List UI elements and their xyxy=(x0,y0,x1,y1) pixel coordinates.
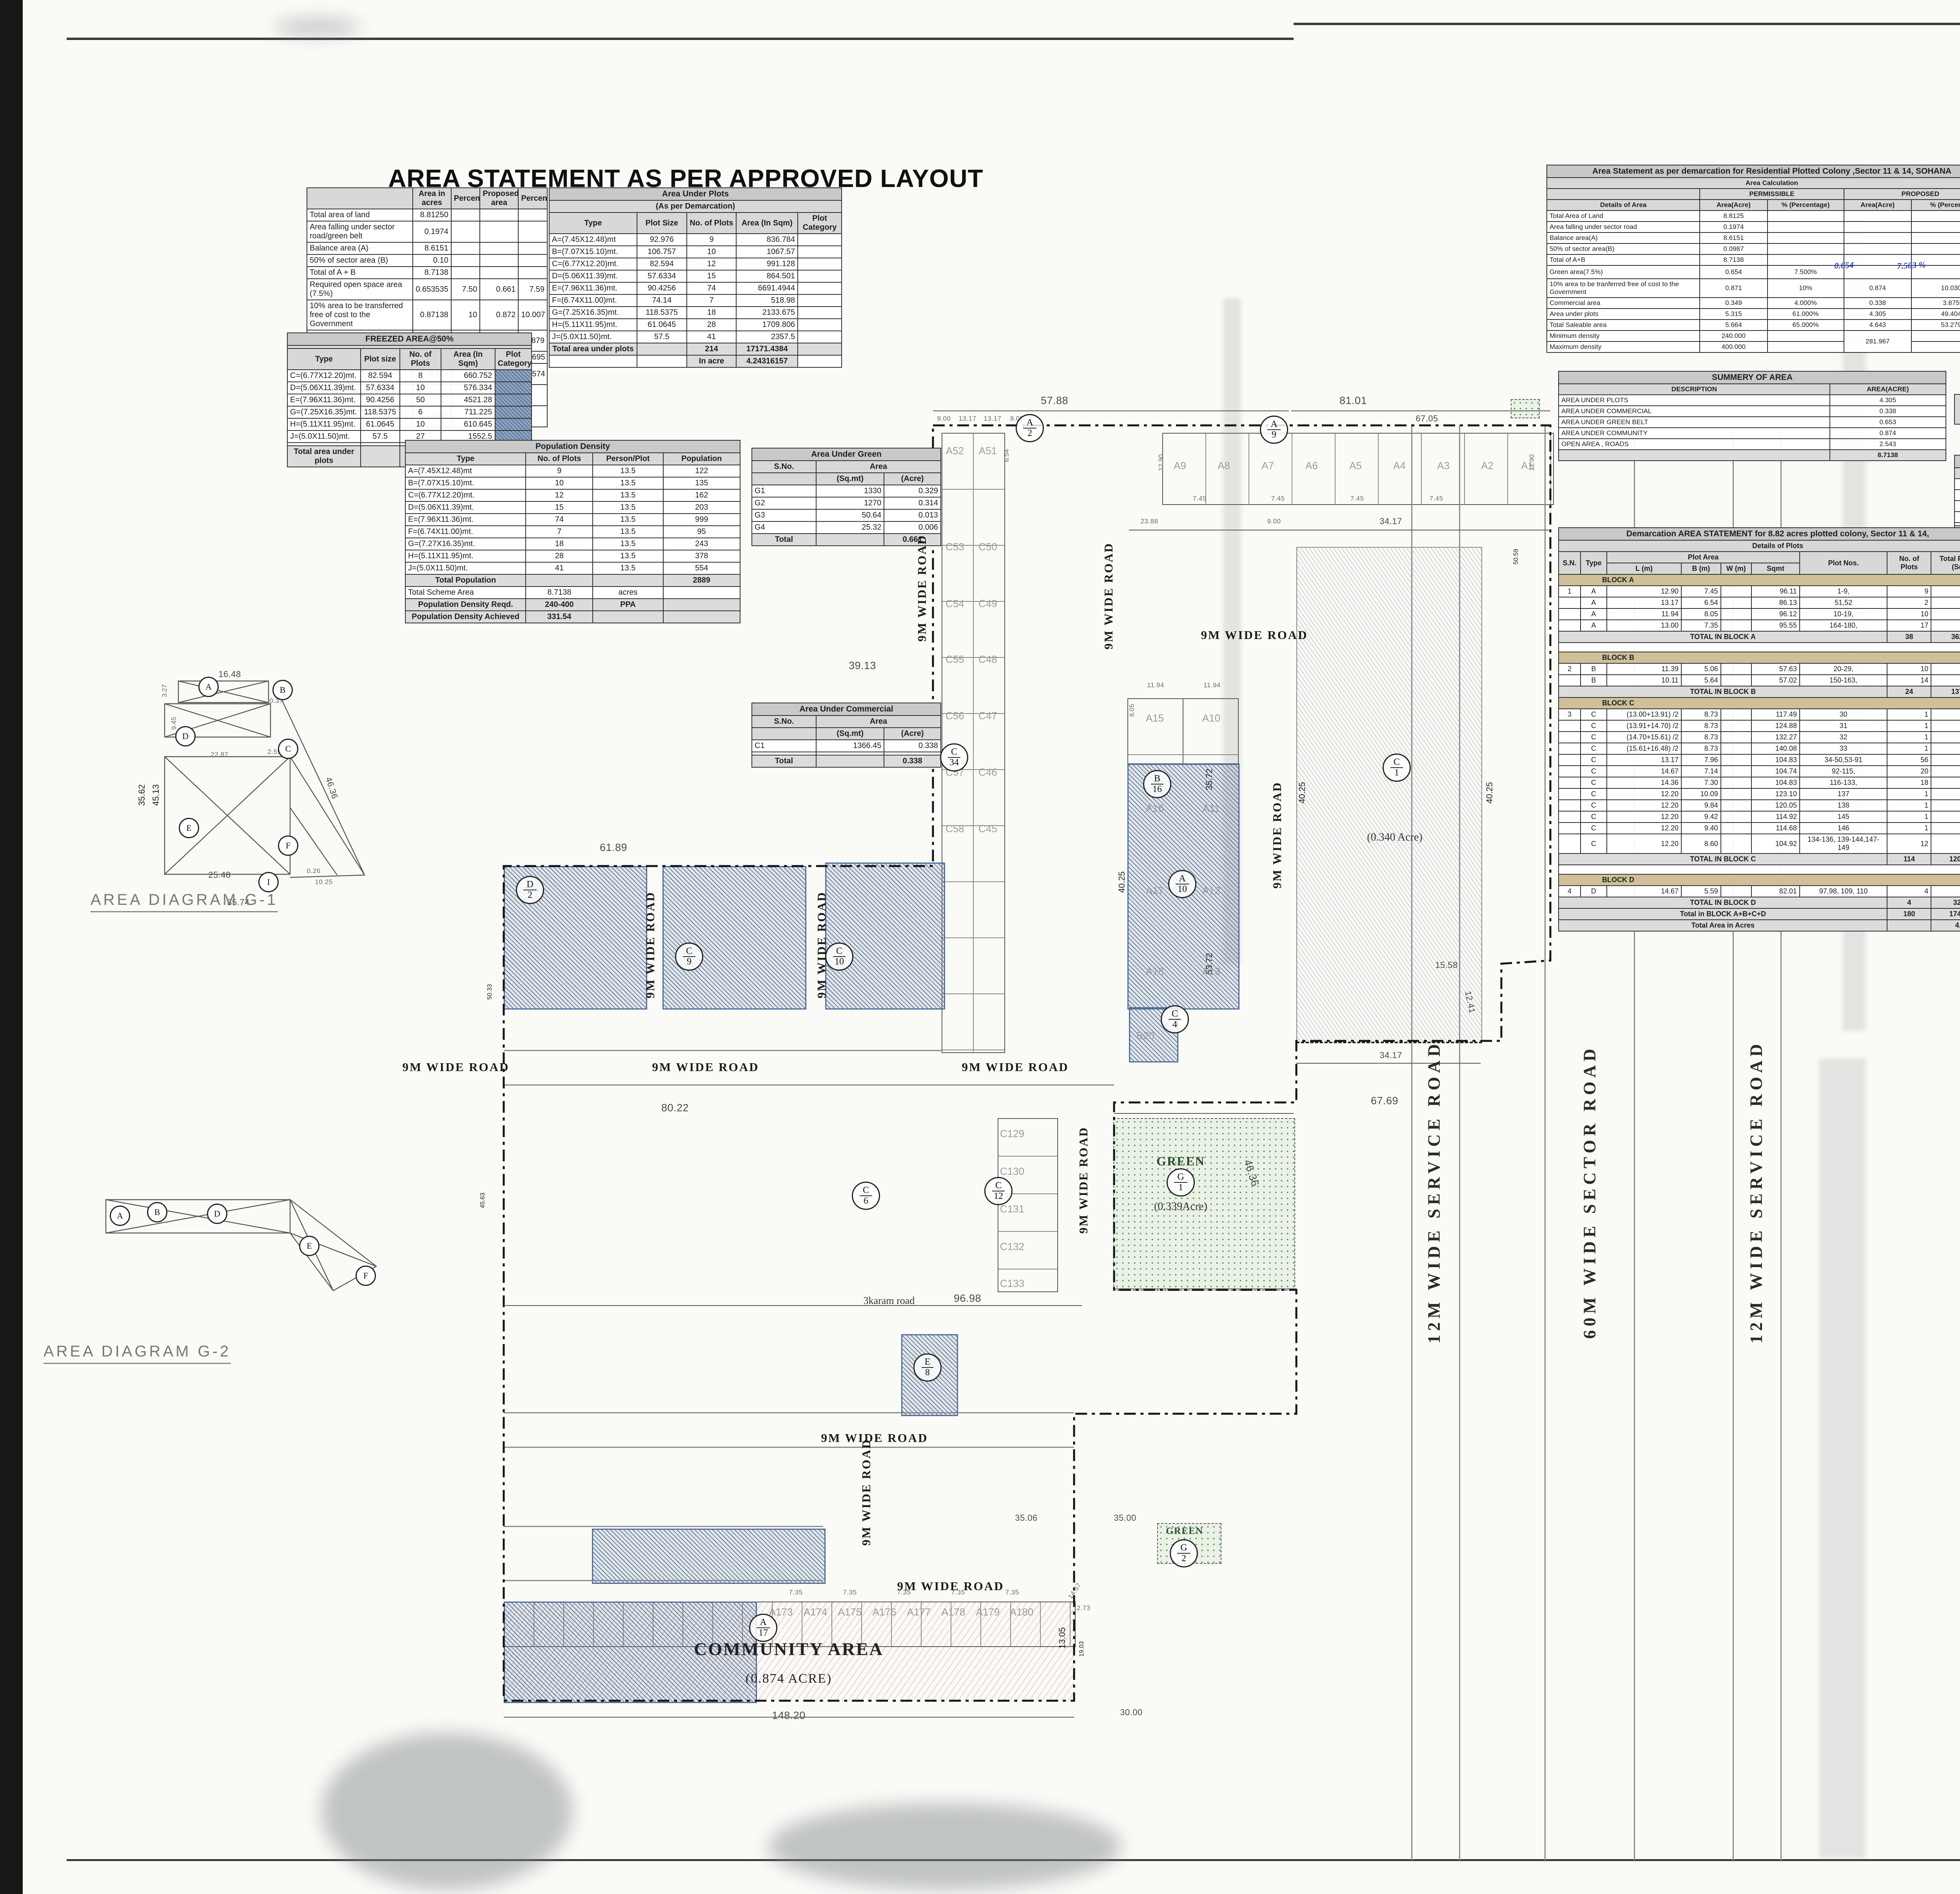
cell xyxy=(1559,811,1581,823)
cell xyxy=(451,242,480,254)
circle-letter: A xyxy=(114,1211,126,1220)
cell: A xyxy=(1581,608,1607,620)
cell: 172.26 xyxy=(1931,597,1960,608)
block-circle-label: D xyxy=(175,726,196,746)
table-summary-of-area: SUMMERY OF AREADESCRIPTIONAREA(ACRE)AREA… xyxy=(1558,371,1946,461)
cell xyxy=(361,443,400,446)
cell: E=(7.96X11.36)mt. xyxy=(287,394,361,406)
cell: 12098.95 xyxy=(1931,853,1960,865)
road-label: 9M WIDE ROAD xyxy=(962,1060,1069,1074)
gname-label: GREEN xyxy=(1156,1154,1205,1169)
cell xyxy=(637,343,687,355)
cell: Type xyxy=(1581,552,1607,574)
cell: Minimum density xyxy=(1547,330,1700,341)
plot-label: A1 xyxy=(1521,460,1534,472)
cell: 4 xyxy=(1887,897,1931,908)
cell: H=(5.11X11.95)mt. xyxy=(549,319,637,331)
circle-number: 6 xyxy=(862,1196,870,1206)
cell: Total xyxy=(752,755,816,767)
cell: AREA UNDER COMMUNITY xyxy=(1559,428,1830,439)
cell xyxy=(1559,450,1830,461)
cell: Plot Area xyxy=(1607,552,1800,563)
block-circle-label: G2 xyxy=(1170,1539,1198,1567)
cell: C xyxy=(1581,788,1607,800)
cell xyxy=(1768,211,1844,222)
cell: 0.338 xyxy=(1830,406,1946,417)
cell: A xyxy=(1955,479,1960,490)
plot-label: C46 xyxy=(978,766,997,779)
cell: No. of Plots xyxy=(1887,552,1931,574)
cell: 0.329 xyxy=(884,485,941,497)
cell xyxy=(593,611,663,623)
dimv-label: 3.27 xyxy=(161,684,169,697)
cell xyxy=(1887,920,1931,931)
cell: TOTAL IN BLOCK D xyxy=(1559,897,1887,908)
cell: 0.0987 xyxy=(1700,243,1767,254)
cell: 117.49 xyxy=(1751,709,1800,720)
dimv-label: 8.05 xyxy=(1128,704,1136,717)
cell: C xyxy=(1581,777,1607,788)
cell: G=(7.25X16.35)mt. xyxy=(549,307,637,319)
cell: 10 xyxy=(526,477,593,489)
plot-label: C58 xyxy=(946,823,964,835)
block-circle-label: A17 xyxy=(749,1614,777,1642)
cell: 0.1974 xyxy=(1700,222,1767,232)
cell xyxy=(816,752,884,755)
cell: 13.5 xyxy=(593,489,663,501)
dim-label: 7.45 xyxy=(1192,495,1206,503)
cell xyxy=(1559,788,1581,800)
cell xyxy=(1559,800,1581,811)
cell xyxy=(1721,743,1751,754)
cell: 6 xyxy=(400,406,441,418)
smudge-area xyxy=(768,1803,1121,1890)
cell: 10 xyxy=(1887,608,1931,620)
cell: 10.030% xyxy=(1911,279,1960,298)
cell: 10-19, xyxy=(1800,608,1887,620)
cell: 2133.675 xyxy=(736,307,798,319)
cell xyxy=(752,473,816,485)
plot-label: A176 xyxy=(873,1606,897,1618)
dim-label: 96.98 xyxy=(954,1293,981,1305)
cell: Type xyxy=(549,212,637,234)
plot-label: C53 xyxy=(946,541,964,553)
cell: 11.94 xyxy=(1607,608,1681,620)
cell xyxy=(752,728,816,740)
table-50pct-freezed-box: 50% area to be freezed by DepartmentPERM… xyxy=(1954,394,1960,425)
cell: 8.73 xyxy=(1681,720,1721,732)
cell: 12.90 xyxy=(1607,586,1681,597)
roadbig-label: 60M WIDE SECTOR ROAD xyxy=(1580,1045,1600,1339)
cell: Plot Nos. xyxy=(1800,552,1887,574)
cell: 4.305 xyxy=(1830,395,1946,406)
cell: 864.501 xyxy=(736,270,798,282)
cell: 10% xyxy=(1768,279,1844,298)
cell: 9 xyxy=(526,465,593,477)
cell: 9 xyxy=(687,234,737,246)
cell: 132.27 xyxy=(1751,732,1800,743)
cell xyxy=(451,221,480,242)
cell xyxy=(1721,732,1751,743)
cell: 864.95 xyxy=(1931,586,1960,597)
cell: Maximum density xyxy=(1547,341,1700,352)
dim-label: 7.45 xyxy=(1350,495,1364,503)
adg-label: AREA DIAGRAM G-1 xyxy=(91,891,278,912)
cell: Person/Plot xyxy=(593,453,663,465)
cell: Total Plot Area (Sq.mt) xyxy=(1931,552,1960,574)
cell: C=(6.77X12.20)mt. xyxy=(549,258,637,270)
road-label: 9M WIDE ROAD xyxy=(402,1060,509,1074)
roadv-label: 9M WIDE ROAD xyxy=(859,1438,873,1545)
cell: (Acre) xyxy=(884,728,941,740)
cell: 991.128 xyxy=(736,258,798,270)
dim-label: 10.25 xyxy=(315,878,332,886)
block-circle-label: I xyxy=(258,872,279,892)
cell: 12.20 xyxy=(1607,811,1681,823)
cell: 30 xyxy=(1800,709,1887,720)
cell: 8.7138 xyxy=(1830,450,1946,461)
cell xyxy=(451,254,480,267)
cell: 2889 xyxy=(663,574,740,587)
cell: 8.73 xyxy=(1681,709,1721,720)
cell: 32 xyxy=(1800,732,1887,743)
plot-label: C48 xyxy=(978,654,997,666)
road-label: 9M WIDE ROAD xyxy=(897,1579,1004,1593)
block-circle-label: C10 xyxy=(825,942,853,971)
cell: 7.30 xyxy=(1681,777,1721,788)
cell: 1 xyxy=(1559,586,1581,597)
cell: 13.00 xyxy=(1607,620,1681,631)
plot-label: A18 xyxy=(1146,966,1164,978)
cell xyxy=(884,752,941,755)
plot-label: A3 xyxy=(1437,460,1450,472)
cell: 118.5375 xyxy=(637,307,687,319)
cell: (14.70+15.61) /2 xyxy=(1607,732,1681,743)
cell: 0.10 xyxy=(413,254,451,267)
plot-label: A4 xyxy=(1393,460,1406,472)
block-circle-label: E xyxy=(179,818,199,838)
cell: 138 xyxy=(1800,800,1887,811)
cell: 95 xyxy=(663,526,740,538)
cell: AREA UNDER COMMERCIAL xyxy=(1559,406,1830,417)
block-circle-label: C6 xyxy=(852,1182,880,1210)
plot-label: C54 xyxy=(946,598,964,610)
cell: 8.05 xyxy=(1681,608,1721,620)
plot-label: A52 xyxy=(946,445,964,457)
dimv-label: 45.63 xyxy=(479,1193,486,1208)
cell: 51,52 xyxy=(1800,597,1887,608)
dim-label: 23.88 xyxy=(1140,518,1158,525)
cell: 124.88 xyxy=(1931,720,1960,732)
cell: 4 xyxy=(1887,886,1931,897)
cell xyxy=(1721,834,1751,853)
cell xyxy=(1844,243,1911,254)
circle-letter: B xyxy=(151,1208,163,1217)
cell xyxy=(1559,675,1581,686)
cell: 97,98, 109, 110 xyxy=(1800,886,1887,897)
dim-label: 7.35 xyxy=(789,1589,802,1596)
cell xyxy=(1768,341,1844,352)
cell: 1270 xyxy=(816,497,884,509)
cell: Total area under plots xyxy=(549,343,637,355)
cell xyxy=(1721,800,1751,811)
cell: 13.5 xyxy=(593,465,663,477)
cell: A=(7.45X12.48)mt xyxy=(405,465,526,477)
cell: SUMMERY OF AREA xyxy=(1559,371,1946,384)
cell: 7.50 xyxy=(451,279,480,300)
cell xyxy=(663,587,740,599)
cell: 28 xyxy=(687,319,737,331)
cell: 610.645 xyxy=(441,418,495,430)
cell xyxy=(1721,886,1751,897)
plot-label: C130 xyxy=(1000,1166,1024,1178)
dim-label: 80.22 xyxy=(661,1102,689,1114)
cell: 124.88 xyxy=(1751,720,1800,732)
cell: Total of A+B xyxy=(1547,254,1700,265)
dim-label: 57.88 xyxy=(1041,395,1068,407)
cell: 140.08 xyxy=(1931,743,1960,754)
dim-label: 0.26 xyxy=(307,867,320,875)
cell: 140.08 xyxy=(1751,743,1800,754)
cell xyxy=(1721,586,1751,597)
cell: 74 xyxy=(687,282,737,294)
cell: AREA UNDER PLOTS xyxy=(1559,395,1830,406)
dim-label: 35.06 xyxy=(1015,1513,1038,1523)
cell: S.N. xyxy=(1559,552,1581,574)
cell: 57.6334 xyxy=(637,270,687,282)
circle-letter: C xyxy=(833,946,846,957)
cell xyxy=(1721,811,1751,823)
dim-label: 61.89 xyxy=(600,842,627,854)
cell: 20-29, xyxy=(1800,663,1887,675)
dim-label: 14.57 xyxy=(1067,1582,1083,1600)
cell: 50% area to be freezed by Department xyxy=(1955,394,1960,424)
cell: Area xyxy=(816,715,941,728)
commname-label: COMMUNITY AREA xyxy=(694,1639,884,1660)
cell: Plot Size xyxy=(637,212,687,234)
roadbig-label: 12M WIDE SERVICE ROAD xyxy=(1746,1040,1766,1344)
circle-number: 2 xyxy=(1026,429,1034,438)
cell: 17424.32 xyxy=(1931,908,1960,920)
cell: TOTAL IN BLOCK C xyxy=(1559,853,1887,865)
cell: 2 xyxy=(1559,663,1581,675)
cell xyxy=(1559,834,1581,853)
cell: 50% of sector area(B) xyxy=(1547,243,1700,254)
cell xyxy=(798,343,842,355)
cell: 104.74 xyxy=(1751,766,1800,777)
cell: C xyxy=(1581,766,1607,777)
cell: OPEN AREA , ROADS xyxy=(1559,439,1830,450)
circle-number: 10 xyxy=(833,957,846,967)
cell: 3 xyxy=(1559,709,1581,720)
cell xyxy=(495,406,532,418)
cell: 12.20 xyxy=(1607,834,1681,853)
dim-label: 46.36 xyxy=(323,776,340,801)
cell: 118.5375 xyxy=(361,406,400,418)
cell xyxy=(1559,643,1960,652)
cell: BLOCK B xyxy=(1559,652,1960,663)
cell: Commercial area xyxy=(1547,298,1700,309)
circle-letter: G xyxy=(1174,1172,1187,1183)
cell: B xyxy=(1955,490,1960,501)
road-label: 9M WIDE ROAD xyxy=(1201,628,1308,642)
cell: 6.54 xyxy=(1681,597,1721,608)
cell: 4.305 xyxy=(1844,309,1911,320)
cell: BLOCK D xyxy=(1559,874,1960,886)
plot-label: C50 xyxy=(978,541,997,553)
cell: 14 xyxy=(1887,675,1931,686)
cell xyxy=(1911,211,1960,222)
cell: AREA(ACRE) xyxy=(1830,384,1946,395)
cell: 61.0645 xyxy=(361,418,400,430)
cell: 28 xyxy=(526,550,593,562)
cell: 82.594 xyxy=(637,258,687,270)
cell xyxy=(1721,823,1751,834)
cell: BLOCK C xyxy=(1559,697,1960,709)
cell: 10 xyxy=(451,300,480,330)
cell: Total area under plots xyxy=(287,446,361,467)
cell: Area Statement as per demarcation for Re… xyxy=(1547,165,1960,178)
cell: 15 xyxy=(687,270,737,282)
area-diagram-g2-lines xyxy=(106,1200,376,1291)
cell: Area(Acre) xyxy=(1700,200,1767,211)
dim-label: 13.17 xyxy=(984,415,1001,423)
cell: 243 xyxy=(663,538,740,550)
cell: 10 xyxy=(687,246,737,258)
plot-label: A175 xyxy=(838,1606,862,1618)
cell: 10 xyxy=(400,418,441,430)
cell: 2.543 xyxy=(1830,439,1946,450)
block-circle-label: C4 xyxy=(1161,1005,1189,1033)
frame-area xyxy=(67,38,1294,40)
cell: 7 xyxy=(526,526,593,538)
cell: 8.6151 xyxy=(413,242,451,254)
cell: 13.5 xyxy=(593,501,663,514)
cell: 13.17 xyxy=(1607,754,1681,766)
cell: Area xyxy=(816,461,941,473)
cell xyxy=(1911,341,1960,352)
cell: 41 xyxy=(687,331,737,343)
cell: A xyxy=(1581,586,1607,597)
cell: 0.349 xyxy=(1700,298,1767,309)
cell xyxy=(518,254,547,267)
cell: 50 xyxy=(400,394,441,406)
cell: Required open space area (7.5%) xyxy=(307,279,413,300)
cell: 74.14 xyxy=(637,294,687,307)
cell: 3622.73 xyxy=(1931,631,1960,643)
cell: 86.13 xyxy=(1751,597,1800,608)
circle-number: 8 xyxy=(924,1368,931,1378)
cell: 328.02 xyxy=(1931,897,1960,908)
cell: L (m) xyxy=(1607,563,1681,574)
block-circle-label: A9 xyxy=(1260,416,1288,444)
cell: Area falling under sector road xyxy=(1547,222,1700,232)
cell xyxy=(1721,788,1751,800)
circle-number: 10 xyxy=(1176,884,1189,894)
circle-letter: C xyxy=(860,1186,872,1196)
cell: 711.225 xyxy=(441,406,495,418)
road-label: 9M WIDE ROAD xyxy=(652,1060,759,1074)
dimv-label: 50.33 xyxy=(486,984,494,1000)
cell: 116-133, xyxy=(1800,777,1887,788)
rl-area xyxy=(1114,1288,1296,1289)
dimv-label: 35.62 xyxy=(137,784,147,806)
cell: % (Percentage) xyxy=(1911,200,1960,211)
cell: G4 xyxy=(752,521,816,534)
strip-area xyxy=(1127,698,1239,765)
adg-label: AREA DIAGRAM G-2 xyxy=(44,1343,231,1364)
cell xyxy=(480,221,518,242)
block-circle-label: C xyxy=(278,739,298,759)
cell: 53.279% xyxy=(1911,320,1960,330)
dim-label: 7.45 xyxy=(1271,495,1285,503)
strip-area xyxy=(942,433,1005,1053)
cell: 8.7138 xyxy=(1700,254,1767,265)
cell: 162 xyxy=(663,489,740,501)
cell xyxy=(549,355,637,367)
cell: 57.5 xyxy=(361,430,400,443)
cell: (Sq.mt) xyxy=(816,473,884,485)
cell: 328.02 xyxy=(1931,886,1960,897)
cell: 92.976 xyxy=(637,234,687,246)
cell: No. of Plots xyxy=(526,453,593,465)
circle-letter: D xyxy=(211,1209,223,1218)
cell xyxy=(495,418,532,430)
cell: 38 xyxy=(1887,631,1931,643)
cell: 7.45 xyxy=(1681,586,1721,597)
cell: A=(7.45X12.48)mt xyxy=(549,234,637,246)
plot-label: C132 xyxy=(1000,1241,1024,1253)
dim-label: 7.35 xyxy=(843,1589,857,1596)
cell xyxy=(1559,777,1581,788)
cell: B=(7.07X15.10)mt. xyxy=(549,246,637,258)
cell: In acre xyxy=(687,355,737,367)
cell: 114 xyxy=(1887,853,1931,865)
plot-label: C131 xyxy=(1000,1203,1024,1215)
cell: A xyxy=(1581,597,1607,608)
cell: 203 xyxy=(663,501,740,514)
circle-letter: E xyxy=(922,1357,934,1368)
cell: 961.17 xyxy=(1931,608,1960,620)
cell xyxy=(1911,222,1960,232)
cell: Balance area (A) xyxy=(307,242,413,254)
circle-number: 34 xyxy=(948,758,960,768)
cell: Sqmt xyxy=(1751,563,1800,574)
cell: 0.871 xyxy=(1700,279,1767,298)
cell: (As per Demarcation) xyxy=(549,200,842,212)
dimv-label: 40.25 xyxy=(1485,782,1495,803)
cell: 5.315 xyxy=(1700,309,1767,320)
plot-label: A177 xyxy=(907,1606,931,1618)
cell: 1330 xyxy=(816,485,884,497)
hb-area xyxy=(592,1529,826,1584)
cell: 41 xyxy=(526,562,593,574)
cell: 82.594 xyxy=(361,370,400,382)
cell: 13.17 xyxy=(1607,597,1681,608)
cell: 18 xyxy=(687,307,737,319)
cell: Area(Acre) xyxy=(1844,200,1911,211)
cell xyxy=(451,267,480,279)
streak-area xyxy=(1819,1059,1866,1858)
roadv-label: 9M WIDE ROAD xyxy=(1076,1126,1091,1233)
cell: 56 xyxy=(1887,754,1931,766)
cell xyxy=(798,258,842,270)
dim-label: 22.87 xyxy=(211,751,228,759)
cell: 5.64 xyxy=(1681,675,1721,686)
cell: 150-163, xyxy=(1800,675,1887,686)
table-population-density: Population DensityTypeNo. of PlotsPerson… xyxy=(405,440,740,623)
cell: 1 xyxy=(1887,732,1931,743)
